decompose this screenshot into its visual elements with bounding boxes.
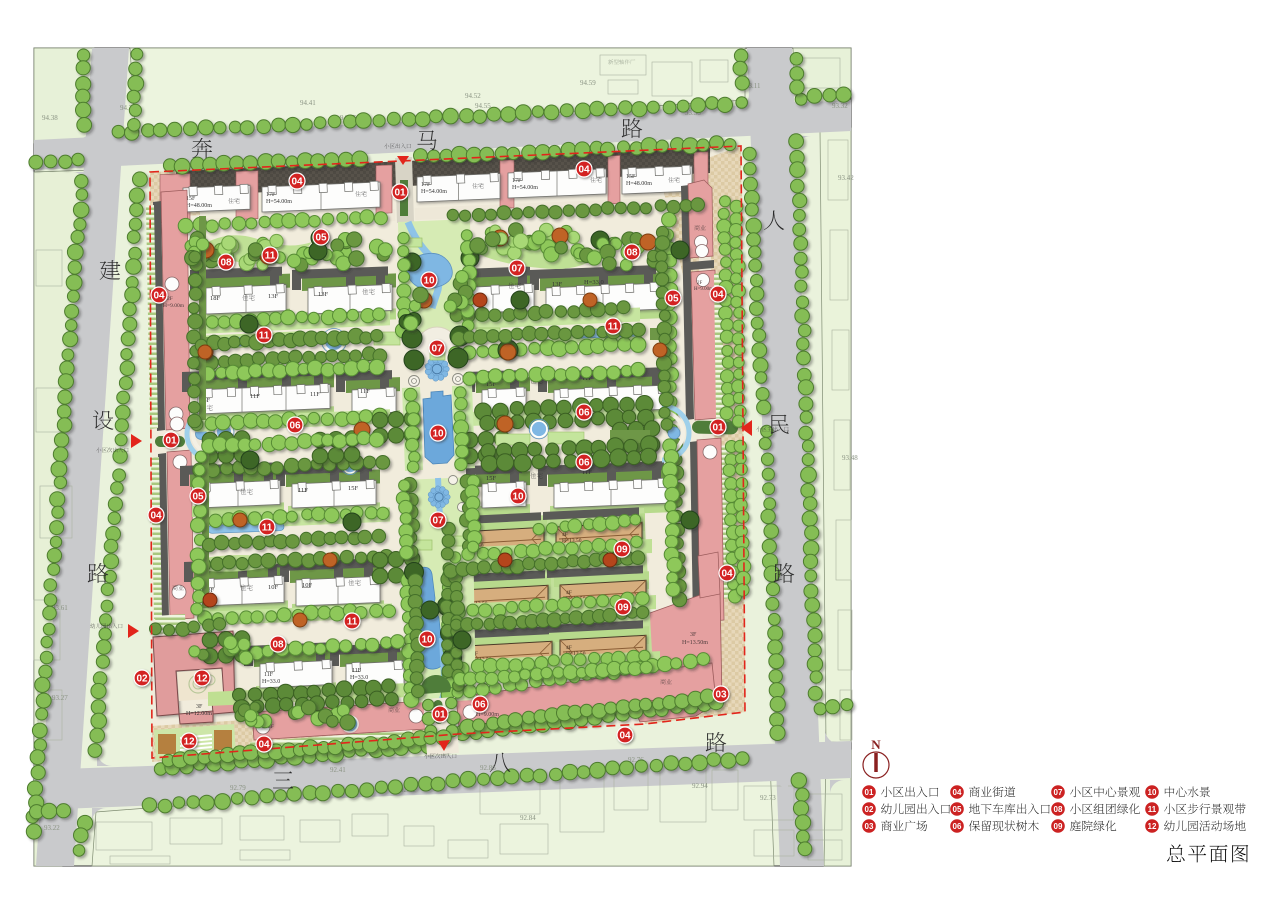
svg-text:05: 05 [315,232,327,243]
svg-text:N: N [871,737,881,752]
svg-text:05: 05 [192,491,204,502]
svg-text:93.27: 93.27 [52,694,68,702]
svg-text:17F: 17F [421,182,431,188]
svg-text:04: 04 [153,290,165,301]
svg-text:93.32: 93.32 [832,102,848,110]
svg-text:15F: 15F [348,485,359,492]
svg-text:02: 02 [865,805,874,814]
svg-text:H=9.00m: H=9.00m [163,303,185,309]
svg-text:94.41: 94.41 [300,99,316,107]
svg-text:04: 04 [258,739,270,750]
svg-text:10: 10 [512,491,524,502]
svg-text:08: 08 [220,257,232,268]
svg-text:10F: 10F [302,582,313,589]
svg-text:H=48.00m: H=48.00m [186,203,212,209]
svg-text:93.42: 93.42 [838,174,854,182]
svg-text:92.73: 92.73 [760,794,776,802]
svg-text:11: 11 [262,522,273,533]
svg-text:11: 11 [608,321,619,332]
svg-text:07: 07 [511,263,523,274]
svg-text:11: 11 [1148,805,1157,814]
svg-text:92.86: 92.86 [480,764,496,772]
svg-text:3F: 3F [196,704,203,710]
svg-text:11: 11 [259,330,270,341]
svg-text:06: 06 [289,420,301,431]
svg-text:11F: 11F [352,668,362,674]
svg-text:11: 11 [347,616,358,627]
svg-text:06: 06 [953,822,962,831]
svg-text:93.22: 93.22 [44,824,60,832]
svg-text:11: 11 [265,250,276,261]
svg-text:01: 01 [394,187,406,198]
svg-text:10: 10 [421,634,433,645]
svg-text:01: 01 [865,788,874,797]
svg-text:07: 07 [431,343,443,354]
svg-text:04: 04 [150,510,162,521]
svg-text:13F: 13F [268,293,279,300]
svg-text:11F: 11F [264,672,274,678]
svg-text:3F: 3F [690,632,697,638]
svg-text:04: 04 [953,788,962,797]
svg-text:13F: 13F [318,291,329,298]
svg-text:92.94: 92.94 [692,782,708,790]
svg-text:10F: 10F [268,584,279,591]
svg-text:94.59: 94.59 [580,79,596,87]
svg-text:H=54.00m: H=54.00m [421,189,447,195]
svg-text:92.41: 92.41 [330,766,346,774]
svg-text:03: 03 [865,822,874,831]
svg-text:H=12.00m: H=12.00m [186,711,212,717]
svg-text:93.48: 93.48 [842,454,858,462]
svg-text:17F: 17F [512,178,522,184]
svg-text:94.38: 94.38 [42,114,58,122]
svg-text:15F: 15F [626,174,636,180]
svg-text:11F: 11F [250,393,260,400]
svg-text:03: 03 [715,689,727,700]
svg-text:92.84: 92.84 [520,814,536,822]
svg-text:92.79: 92.79 [230,784,246,792]
svg-text:12: 12 [1148,822,1157,831]
svg-text:H=13.50m: H=13.50m [682,640,708,646]
svg-text:04: 04 [619,730,631,741]
svg-text:H=54.00m: H=54.00m [512,185,538,191]
svg-text:08: 08 [1054,805,1063,814]
svg-text:11F: 11F [298,487,308,494]
svg-text:13F: 13F [552,281,563,288]
svg-text:08: 08 [272,639,284,650]
svg-text:09: 09 [616,544,628,555]
svg-text:06: 06 [578,407,590,418]
svg-text:08: 08 [626,247,638,258]
svg-text:04: 04 [578,164,590,175]
svg-text:07: 07 [432,515,444,526]
svg-text:04: 04 [712,289,724,300]
svg-text:05: 05 [667,293,679,304]
svg-text:05: 05 [953,805,962,814]
svg-text:12: 12 [183,736,195,747]
svg-text:10: 10 [1148,788,1157,797]
svg-text:2F: 2F [697,281,703,286]
svg-text:10: 10 [423,275,435,286]
svg-text:15F: 15F [186,196,196,202]
svg-text:18F: 18F [210,295,221,302]
svg-text:11F: 11F [360,388,370,395]
svg-text:07: 07 [1054,788,1063,797]
svg-text:12: 12 [196,673,208,684]
svg-text:11F: 11F [310,391,320,398]
svg-text:04: 04 [721,568,733,579]
svg-text:09: 09 [1054,822,1063,831]
svg-text:2F: 2F [167,296,173,302]
svg-text:H=48.00m: H=48.00m [626,181,652,187]
svg-text:01: 01 [712,422,724,433]
svg-text:94.55: 94.55 [475,102,491,110]
svg-text:H=33.0: H=33.0 [584,279,604,286]
svg-text:06: 06 [578,457,590,468]
svg-text:04: 04 [291,176,303,187]
svg-text:H=54.00m: H=54.00m [266,199,292,205]
svg-text:02: 02 [136,673,148,684]
svg-text:17F: 17F [266,192,276,198]
svg-text:15F: 15F [486,475,497,482]
svg-text:94.52: 94.52 [465,92,481,100]
svg-text:06: 06 [474,699,486,710]
svg-text:H=33.0: H=33.0 [262,679,280,685]
svg-text:01: 01 [434,709,446,720]
svg-text:09: 09 [617,602,629,613]
svg-text:10: 10 [432,428,444,439]
svg-text:01: 01 [165,435,177,446]
